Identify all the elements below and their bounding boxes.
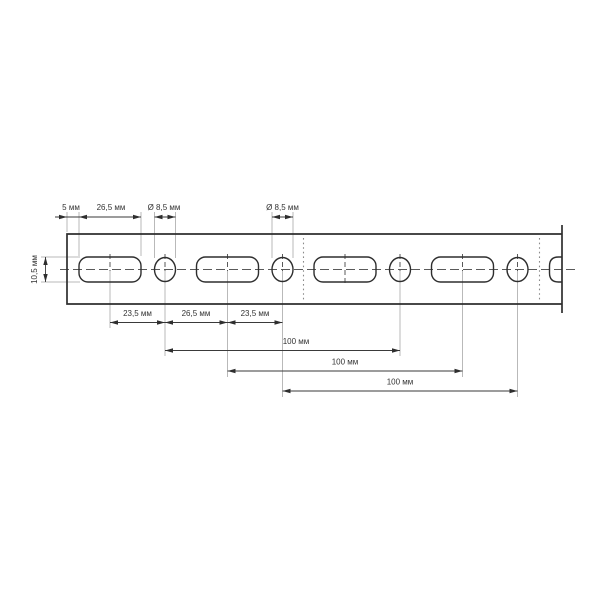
- dim-label-chain-3: 23,5 мм: [241, 309, 270, 318]
- dim-label-slot-length: 26,5 мм: [97, 203, 126, 212]
- arrowhead: [283, 389, 291, 393]
- arrowhead: [510, 389, 518, 393]
- dim-label-pitch-3: 100 мм: [387, 378, 414, 387]
- arrowhead: [228, 369, 236, 373]
- dim-hole-diameter-2: Ø 8,5 мм: [266, 203, 299, 219]
- technical-drawing-canvas: 5 мм 26,5 мм Ø 8,5 мм Ø 8,5 мм 10,5 мм 2…: [0, 0, 600, 600]
- dim-label-pitch-1: 100 мм: [283, 337, 310, 346]
- dim-label-hole-dia-1: Ø 8,5 мм: [148, 203, 181, 212]
- arrowhead: [43, 257, 47, 265]
- arrowhead: [43, 274, 47, 282]
- arrowhead: [133, 215, 141, 219]
- arrowhead: [165, 320, 173, 324]
- arrowhead: [272, 215, 280, 219]
- dim-pitch-1: 100 мм: [165, 337, 400, 353]
- arrowhead: [155, 215, 163, 219]
- arrowhead: [79, 215, 87, 219]
- arrowhead: [275, 320, 283, 324]
- arrowhead: [285, 215, 293, 219]
- dim-label-pitch-2: 100 мм: [332, 358, 359, 367]
- dim-pitch-2: 100 мм: [228, 358, 463, 374]
- dim-end-offset-and-slot-length: 5 мм 26,5 мм: [55, 203, 141, 219]
- dim-label-slot-width: 10,5 мм: [30, 255, 39, 284]
- dim-label-hole-dia-2: Ø 8,5 мм: [266, 203, 299, 212]
- dim-label-end-offset: 5 мм: [62, 203, 80, 212]
- dim-label-chain-1: 23,5 мм: [123, 309, 152, 318]
- centerlines: [60, 238, 578, 300]
- arrowhead: [110, 320, 118, 324]
- arrowhead: [220, 320, 228, 324]
- strip-dimension-drawing: 5 мм 26,5 мм Ø 8,5 мм Ø 8,5 мм 10,5 мм 2…: [0, 0, 600, 600]
- dim-label-chain-2: 26,5 мм: [182, 309, 211, 318]
- arrowhead: [455, 369, 463, 373]
- arrowhead: [165, 348, 173, 352]
- arrowhead: [157, 320, 165, 324]
- arrowhead: [168, 215, 176, 219]
- arrowhead: [59, 215, 67, 219]
- dim-chain-row: 23,5 мм 26,5 мм 23,5 мм: [110, 309, 283, 325]
- arrowhead: [392, 348, 400, 352]
- dim-slot-width: 10,5 мм: [30, 255, 48, 284]
- arrowhead: [228, 320, 236, 324]
- dim-hole-diameter-1: Ø 8,5 мм: [148, 203, 181, 219]
- dim-pitch-3: 100 мм: [283, 378, 518, 394]
